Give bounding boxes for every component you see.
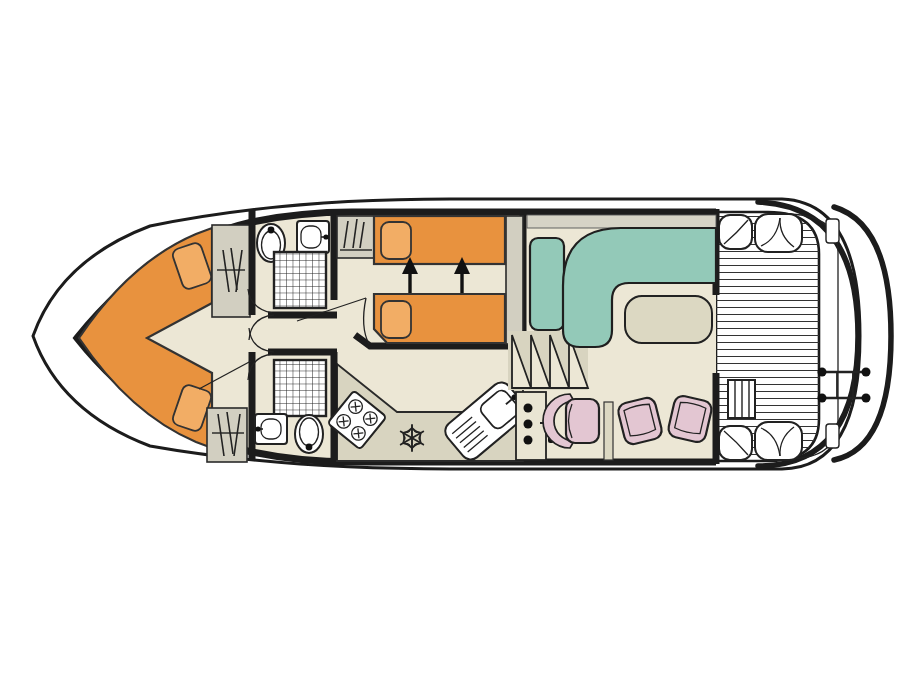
bedside-shelf [506,216,523,344]
dining-chair-right [667,394,713,443]
corner-seat-bottom-left [719,426,752,460]
console-control-dot [524,436,533,445]
window-shelf [527,215,716,228]
single-berth-bottom [374,294,505,343]
washbasin-icon [297,221,329,253]
boat-floor-plan [0,0,899,674]
wardrobe-bow-bottom [207,408,247,462]
washbasin-icon [255,414,287,444]
helm-seat [543,394,599,448]
console-control-dot [524,420,533,429]
shower-grid-icon [274,252,326,308]
corner-seat-bottom-right [755,422,802,460]
saloon-table [625,296,712,343]
berth-pillow [381,222,411,259]
corner-seat-top-right [755,214,802,252]
floor-plan-canvas [0,0,899,674]
toilet-icon [295,415,323,453]
console-control-dot [524,404,533,413]
wardrobe-bow-top [212,225,250,317]
deck-steps [728,380,755,418]
corner-seat-top-left [719,215,752,249]
stern-step-notch-top [826,219,839,243]
partition-post [604,402,613,460]
berth-pillow [381,301,411,338]
stern-step-notch-bottom [826,424,839,448]
shower-grid-icon [274,360,326,416]
wardrobe-mid [337,216,375,258]
sofa-side [530,238,564,330]
single-berth-top [374,216,505,264]
